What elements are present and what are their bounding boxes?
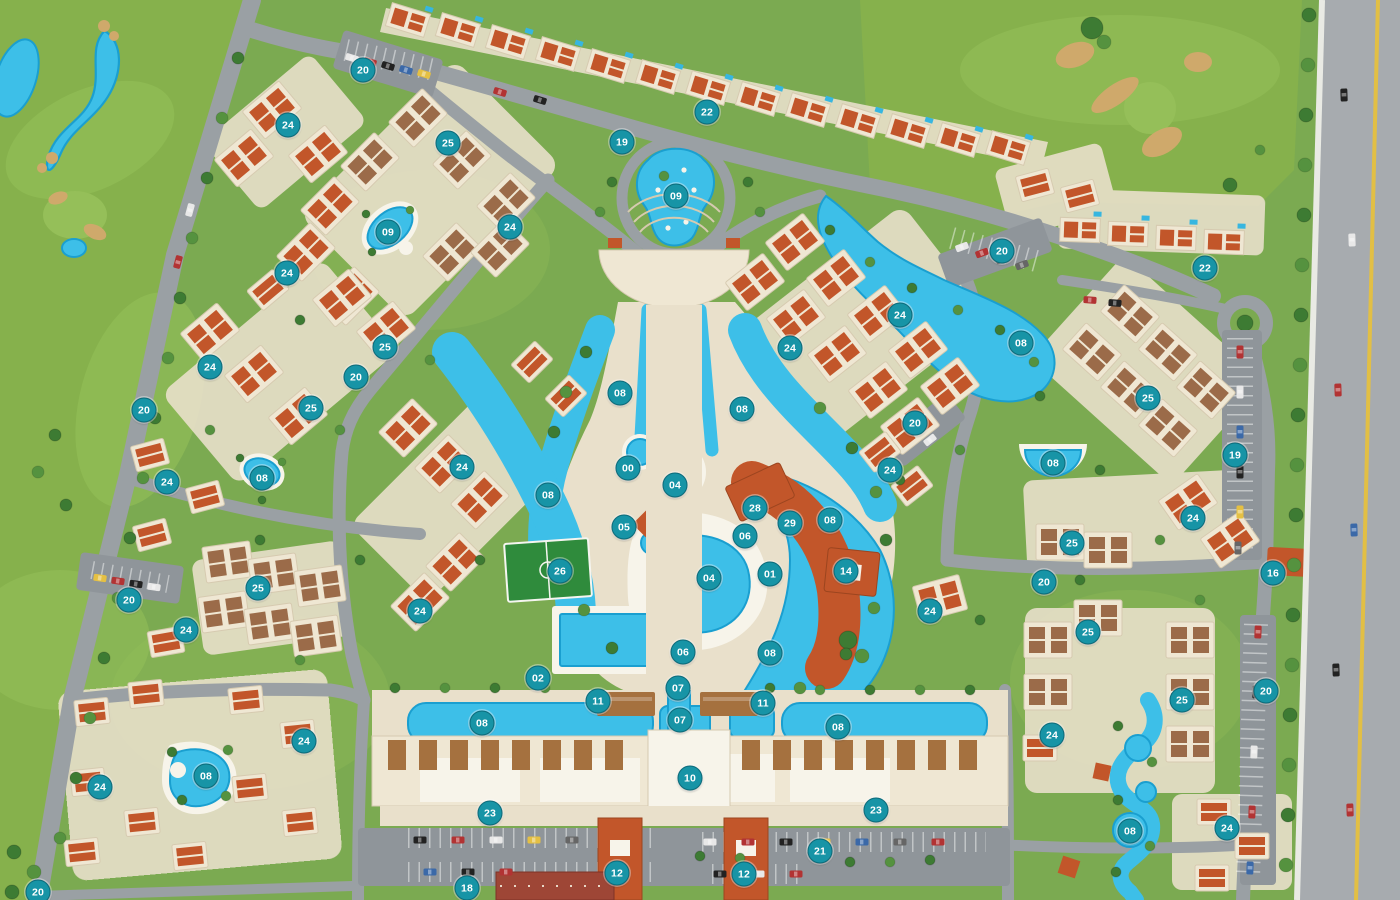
plot-marker-08[interactable]: 08	[194, 764, 219, 789]
plot-marker-24[interactable]: 24	[275, 261, 300, 286]
plot-marker-22[interactable]: 22	[1193, 256, 1218, 281]
plot-marker-24[interactable]: 24	[174, 618, 199, 643]
plot-marker-18[interactable]: 18	[455, 876, 480, 900]
plot-marker-23[interactable]: 23	[864, 798, 889, 823]
plot-marker-02[interactable]: 02	[526, 666, 551, 691]
plot-marker-08[interactable]: 08	[470, 711, 495, 736]
plot-marker-08[interactable]: 08	[818, 508, 843, 533]
plot-marker-25[interactable]: 25	[1170, 688, 1195, 713]
plot-marker-21[interactable]: 21	[808, 839, 833, 864]
plot-marker-29[interactable]: 29	[778, 511, 803, 536]
plot-marker-05[interactable]: 05	[612, 515, 637, 540]
plot-marker-10[interactable]: 10	[678, 766, 703, 791]
plot-marker-25[interactable]: 25	[299, 396, 324, 421]
plot-marker-24[interactable]: 24	[878, 458, 903, 483]
plot-marker-07[interactable]: 07	[666, 676, 691, 701]
plot-marker-11[interactable]: 11	[751, 691, 776, 716]
plot-marker-25[interactable]: 25	[246, 576, 271, 601]
plot-marker-20[interactable]: 20	[990, 239, 1015, 264]
plot-marker-20[interactable]: 20	[351, 58, 376, 83]
plot-marker-08[interactable]: 08	[250, 466, 275, 491]
plot-marker-25[interactable]: 25	[373, 335, 398, 360]
plot-marker-19[interactable]: 19	[1223, 443, 1248, 468]
master-plan-map: 2022190924250924242520252420240825202424…	[0, 0, 1400, 900]
plot-marker-25[interactable]: 25	[1076, 620, 1101, 645]
plot-marker-24[interactable]: 24	[292, 729, 317, 754]
plot-marker-24[interactable]: 24	[198, 355, 223, 380]
plot-marker-28[interactable]: 28	[743, 496, 768, 521]
plot-marker-08[interactable]: 08	[1009, 331, 1034, 356]
plot-marker-08[interactable]: 08	[1041, 451, 1066, 476]
plot-marker-01[interactable]: 01	[758, 562, 783, 587]
plot-marker-24[interactable]: 24	[450, 455, 475, 480]
plot-marker-24[interactable]: 24	[408, 599, 433, 624]
plot-marker-19[interactable]: 19	[610, 130, 635, 155]
plot-marker-06[interactable]: 06	[671, 640, 696, 665]
plot-marker-08[interactable]: 08	[826, 715, 851, 740]
plot-marker-20[interactable]: 20	[132, 398, 157, 423]
plot-marker-25[interactable]: 25	[436, 131, 461, 156]
plot-marker-24[interactable]: 24	[498, 215, 523, 240]
plot-marker-04[interactable]: 04	[663, 473, 688, 498]
plot-marker-11[interactable]: 11	[586, 689, 611, 714]
plot-marker-20[interactable]: 20	[117, 588, 142, 613]
plot-marker-08[interactable]: 08	[758, 641, 783, 666]
plot-marker-08[interactable]: 08	[608, 381, 633, 406]
plot-marker-12[interactable]: 12	[605, 861, 630, 886]
plot-marker-24[interactable]: 24	[1215, 816, 1240, 841]
plot-marker-09[interactable]: 09	[376, 220, 401, 245]
plot-marker-00[interactable]: 00	[616, 456, 641, 481]
plot-marker-25[interactable]: 25	[1136, 386, 1161, 411]
plot-marker-04[interactable]: 04	[697, 566, 722, 591]
plot-marker-08[interactable]: 08	[730, 397, 755, 422]
plot-marker-09[interactable]: 09	[664, 184, 689, 209]
plot-marker-20[interactable]: 20	[344, 365, 369, 390]
plot-marker-23[interactable]: 23	[478, 801, 503, 826]
plot-marker-16[interactable]: 16	[1261, 561, 1286, 586]
plot-marker-24[interactable]: 24	[888, 303, 913, 328]
plot-marker-07[interactable]: 07	[668, 708, 693, 733]
plot-marker-24[interactable]: 24	[778, 336, 803, 361]
plot-marker-14[interactable]: 14	[834, 559, 859, 584]
plot-marker-24[interactable]: 24	[155, 470, 180, 495]
plot-marker-20[interactable]: 20	[1032, 570, 1057, 595]
plot-marker-24[interactable]: 24	[276, 113, 301, 138]
plot-marker-20[interactable]: 20	[26, 880, 51, 900]
plot-marker-24[interactable]: 24	[918, 599, 943, 624]
plot-marker-20[interactable]: 20	[1254, 679, 1279, 704]
plot-marker-20[interactable]: 20	[903, 411, 928, 436]
plot-marker-22[interactable]: 22	[695, 100, 720, 125]
marker-layer: 2022190924250924242520252420240825202424…	[0, 0, 1400, 900]
plot-marker-08[interactable]: 08	[1118, 819, 1143, 844]
plot-marker-06[interactable]: 06	[733, 524, 758, 549]
plot-marker-26[interactable]: 26	[548, 559, 573, 584]
plot-marker-12[interactable]: 12	[732, 862, 757, 887]
plot-marker-08[interactable]: 08	[536, 483, 561, 508]
plot-marker-24[interactable]: 24	[88, 775, 113, 800]
plot-marker-25[interactable]: 25	[1060, 531, 1085, 556]
plot-marker-24[interactable]: 24	[1181, 506, 1206, 531]
plot-marker-24[interactable]: 24	[1040, 723, 1065, 748]
